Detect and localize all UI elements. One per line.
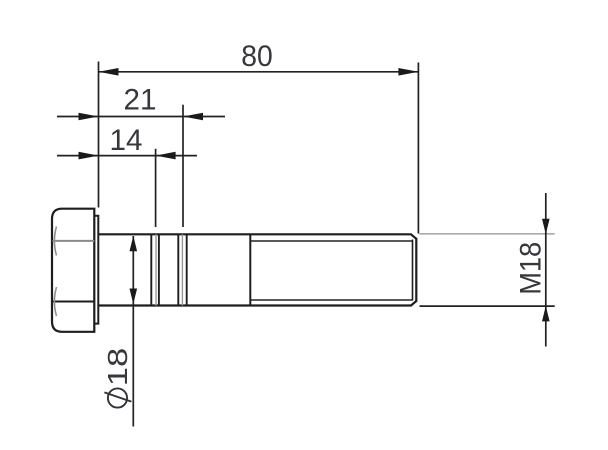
svg-text:14: 14: [110, 124, 143, 157]
svg-text:21: 21: [124, 84, 157, 117]
svg-text:18: 18: [102, 348, 133, 387]
svg-text:80: 80: [241, 40, 273, 73]
svg-text:M18: M18: [515, 242, 548, 295]
